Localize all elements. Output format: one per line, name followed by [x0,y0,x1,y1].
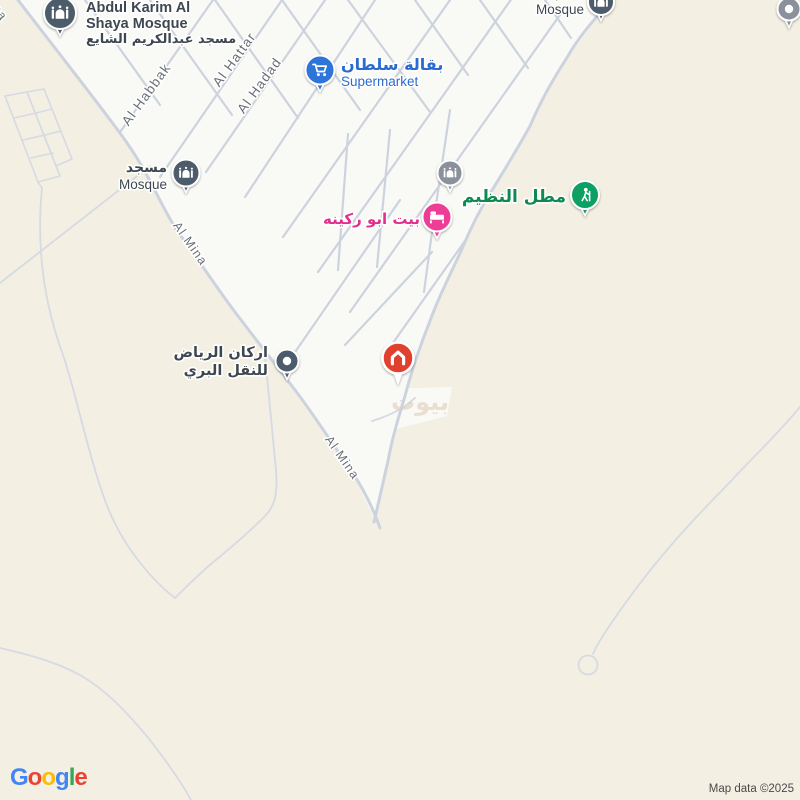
poi-name-en: Mosque [536,2,584,17]
google-logo[interactable]: Google [10,764,87,792]
poi-name-arabic: مسجد [126,160,167,176]
map-watermark: بيوت [391,388,449,416]
poi-name-line2: Shaya Mosque [86,16,188,32]
map-viewport: بيوت Al Mina Al Habbak Al Hattar Al Hada… [0,0,800,800]
logo-letter: o [41,764,55,791]
logo-letter: o [28,764,42,791]
map-attribution: Map data ©2025 [709,783,794,795]
logo-letter: e [74,764,86,791]
poi-name-arabic-line1: اركان الرياض [174,345,268,361]
map-canvas[interactable]: بيوت Al Mina Al Habbak Al Hattar Al Hada… [0,0,800,800]
logo-letter: G [10,764,28,791]
poi-name-arabic: بقالة سلطان [341,55,443,74]
poi-name-arabic-line2: للنقل البري [184,363,268,380]
poi-name-arabic: مسجد عبدالكريم الشايع [86,32,236,47]
poi-name-en: Mosque [119,177,167,192]
logo-letter: g [55,764,69,791]
poi-name-line1: Abdul Karim Al [86,0,190,16]
poi-name-arabic: بيت ابو ركينه [323,210,420,228]
poi-name-arabic: مطل النظيم [462,187,566,207]
poi-name-en: Supermarket [341,74,419,89]
